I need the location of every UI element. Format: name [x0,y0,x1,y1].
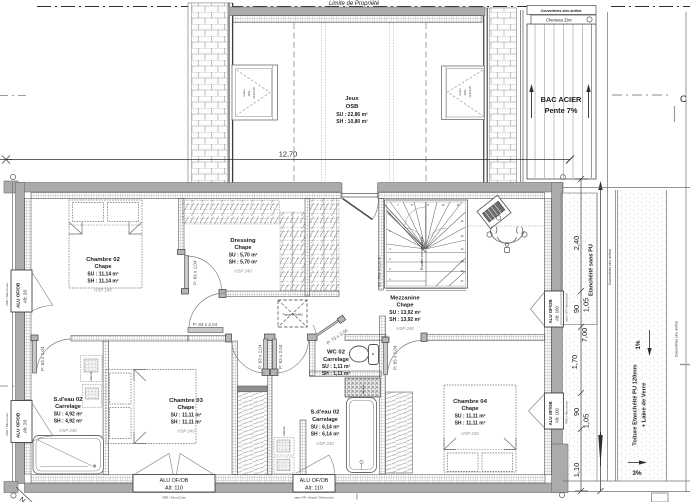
svg-text:Chape: Chape [94,264,111,270]
svg-text:ALU OF/OB: ALU OF/OB [548,401,553,425]
svg-text:HSP 240: HSP 240 [396,326,414,331]
svg-text:90: 90 [572,305,581,313]
svg-text:SU : 22,86 m²: SU : 22,86 m² [336,112,368,118]
svg-text:GC - Plan ht 1,10 m: GC - Plan ht 1,10 m [378,257,382,287]
svg-text:WC 02: WC 02 [327,350,346,356]
svg-text:P: 83 x 2,04: P: 83 x 2,04 [193,322,218,327]
svg-text:SU : 1,11 m²: SU : 1,11 m² [322,364,351,370]
svg-text:SH : 11,11 m²: SH : 11,11 m² [455,421,486,427]
svg-text:Cheneau Zinc: Cheneau Zinc [546,18,572,23]
svg-text:HSP 240: HSP 240 [59,428,77,433]
svg-text:P: 63 x 2,04: P: 63 x 2,04 [278,344,283,369]
svg-text:sans VR / dépoli / Monocolor: sans VR / dépoli / Monocolor [294,496,334,500]
svg-text:SH : 6,14 m²: SH : 6,14 m² [311,432,340,438]
svg-text:SH : 4,92 m²: SH : 4,92 m² [54,419,83,425]
svg-text:SH : 11,14 m²: SH : 11,14 m² [87,279,118,285]
svg-text:Chape: Chape [461,406,478,412]
svg-text:Chape: Chape [177,405,194,411]
svg-text:VRE / MonoColor: VRE / MonoColor [162,496,186,500]
svg-text:Pente 7%: Pente 7% [545,106,578,115]
svg-text:Trappe 600x600: Trappe 600x600 [282,313,303,317]
svg-text:1,05: 1,05 [582,298,591,312]
svg-text:Chape: Chape [234,245,251,251]
svg-text:Dressing: Dressing [230,238,256,244]
svg-text:BAC ACIER: BAC ACIER [541,95,582,104]
svg-text:HSP 240: HSP 240 [177,429,195,434]
svg-text:Attente: Attente [89,371,93,381]
svg-text:Velux: Velux [242,89,246,97]
svg-text:Carrelage: Carrelage [323,357,349,363]
svg-text:Velux: Velux [458,88,462,96]
svg-text:114x118: 114x118 [252,87,256,99]
svg-text:Alt: 110: Alt: 110 [165,486,183,492]
svg-text:2,40: 2,40 [572,236,581,250]
svg-text:HSP 240: HSP 240 [316,441,334,446]
svg-text:Jeux: Jeux [345,96,359,102]
svg-text:VRE / Monocolor: VRE / Monocolor [5,283,9,306]
svg-text:Chape: Chape [396,303,413,309]
svg-text:Toiture Etanchéité PU 120mm: Toiture Etanchéité PU 120mm [633,364,639,445]
svg-text:Vasque: Vasque [361,384,365,394]
svg-text:Alt: 110: Alt: 110 [305,486,323,492]
svg-text:HSP 240: HSP 240 [461,431,479,436]
svg-text:Attente: Attente [282,426,286,436]
svg-text:Alt: 20: Alt: 20 [23,420,28,433]
svg-text:SU : 11,11 m²: SU : 11,11 m² [171,413,202,419]
svg-text:7,00: 7,00 [580,328,589,342]
svg-text:1,70: 1,70 [570,355,579,369]
svg-text:12,70: 12,70 [279,150,298,159]
svg-text:Carrelage: Carrelage [312,417,338,423]
svg-text:Chambre 03: Chambre 03 [169,398,203,404]
svg-text:ALU OF/OB: ALU OF/OB [548,299,553,323]
svg-text:Alt: 20: Alt: 20 [23,290,28,303]
svg-text:HSP 240: HSP 240 [234,269,252,274]
svg-text:S.d'eau 02: S.d'eau 02 [54,397,84,403]
svg-text:ALU OF/OB: ALU OF/OB [16,412,21,438]
svg-text:3%: 3% [632,470,642,477]
svg-text:1,10: 1,10 [572,463,581,477]
svg-text:Escalier en rayonnant: Escalier en rayonnant [420,236,424,270]
svg-text:P: 83 x 2,04: P: 83 x 2,04 [193,260,198,285]
svg-text:P: 63 x 2,04: P: 63 x 2,04 [40,346,45,371]
svg-text:SU : 6,14 m²: SU : 6,14 m² [311,425,340,431]
svg-text:1,05: 1,05 [582,414,591,428]
svg-text:ALU OF/OB: ALU OF/OB [16,282,21,308]
svg-text:P: 63 x 2,04: P: 63 x 2,04 [258,344,263,369]
svg-text:S.d'eau 02: S.d'eau 02 [311,410,341,416]
svg-text:P: 83 x 2,04: P: 83 x 2,04 [393,345,398,370]
svg-text:SU : 5,70 m²: SU : 5,70 m² [229,253,258,259]
svg-text:SH : 1,11 m²: SH : 1,11 m² [322,371,351,377]
svg-text:+ Laine de Verre: + Laine de Verre [642,382,648,427]
svg-text:Limite de Propriété: Limite de Propriété [329,1,380,7]
svg-text:OSB: OSB [346,104,359,110]
svg-text:Couvertines zinc anthra: Couvertines zinc anthra [608,249,612,285]
svg-text:SH : 11,11 m²: SH : 11,11 m² [171,420,202,426]
svg-text:SH : 5,70 m²: SH : 5,70 m² [229,260,258,266]
svg-text:SU : 11,14 m²: SU : 11,14 m² [87,272,118,278]
svg-text:Alt: 100: Alt: 100 [555,306,560,321]
svg-text:SU : 11,11 m²: SU : 11,11 m² [455,414,486,420]
svg-text:1%: 1% [635,340,642,350]
svg-text:GGL: GGL [463,88,467,95]
svg-text:ALU OF/OB: ALU OF/OB [300,478,329,484]
svg-text:Couvertines zinc anthra: Couvertines zinc anthra [675,321,679,357]
svg-text:Etanchéité sans PU: Etanchéité sans PU [589,244,595,296]
svg-text:Chambre 02: Chambre 02 [86,257,120,263]
svg-text:90: 90 [572,408,581,416]
svg-text:SH : 13,92 m²: SH : 13,92 m² [389,317,421,323]
svg-text:HSP 240: HSP 240 [94,288,112,293]
svg-text:SH : 10,80 m²: SH : 10,80 m² [336,119,368,125]
svg-text:SU : 13,92 m²: SU : 13,92 m² [389,310,421,316]
svg-text:ALU OF/OB: ALU OF/OB [160,478,189,484]
svg-text:Mezzanine: Mezzanine [390,296,420,302]
svg-text:SU : 4,92 m²: SU : 4,92 m² [54,412,83,418]
svg-text:Carrelage: Carrelage [55,404,81,410]
svg-text:Couvertines zinc anthra: Couvertines zinc anthra [541,9,582,13]
svg-text:GGL: GGL [247,89,251,96]
svg-text:VRE / Monocolor: VRE / Monocolor [5,413,9,436]
svg-text:114x118: 114x118 [468,86,472,98]
svg-text:Chambre 04: Chambre 04 [453,399,487,405]
svg-text:Alt: 100: Alt: 100 [555,408,560,423]
